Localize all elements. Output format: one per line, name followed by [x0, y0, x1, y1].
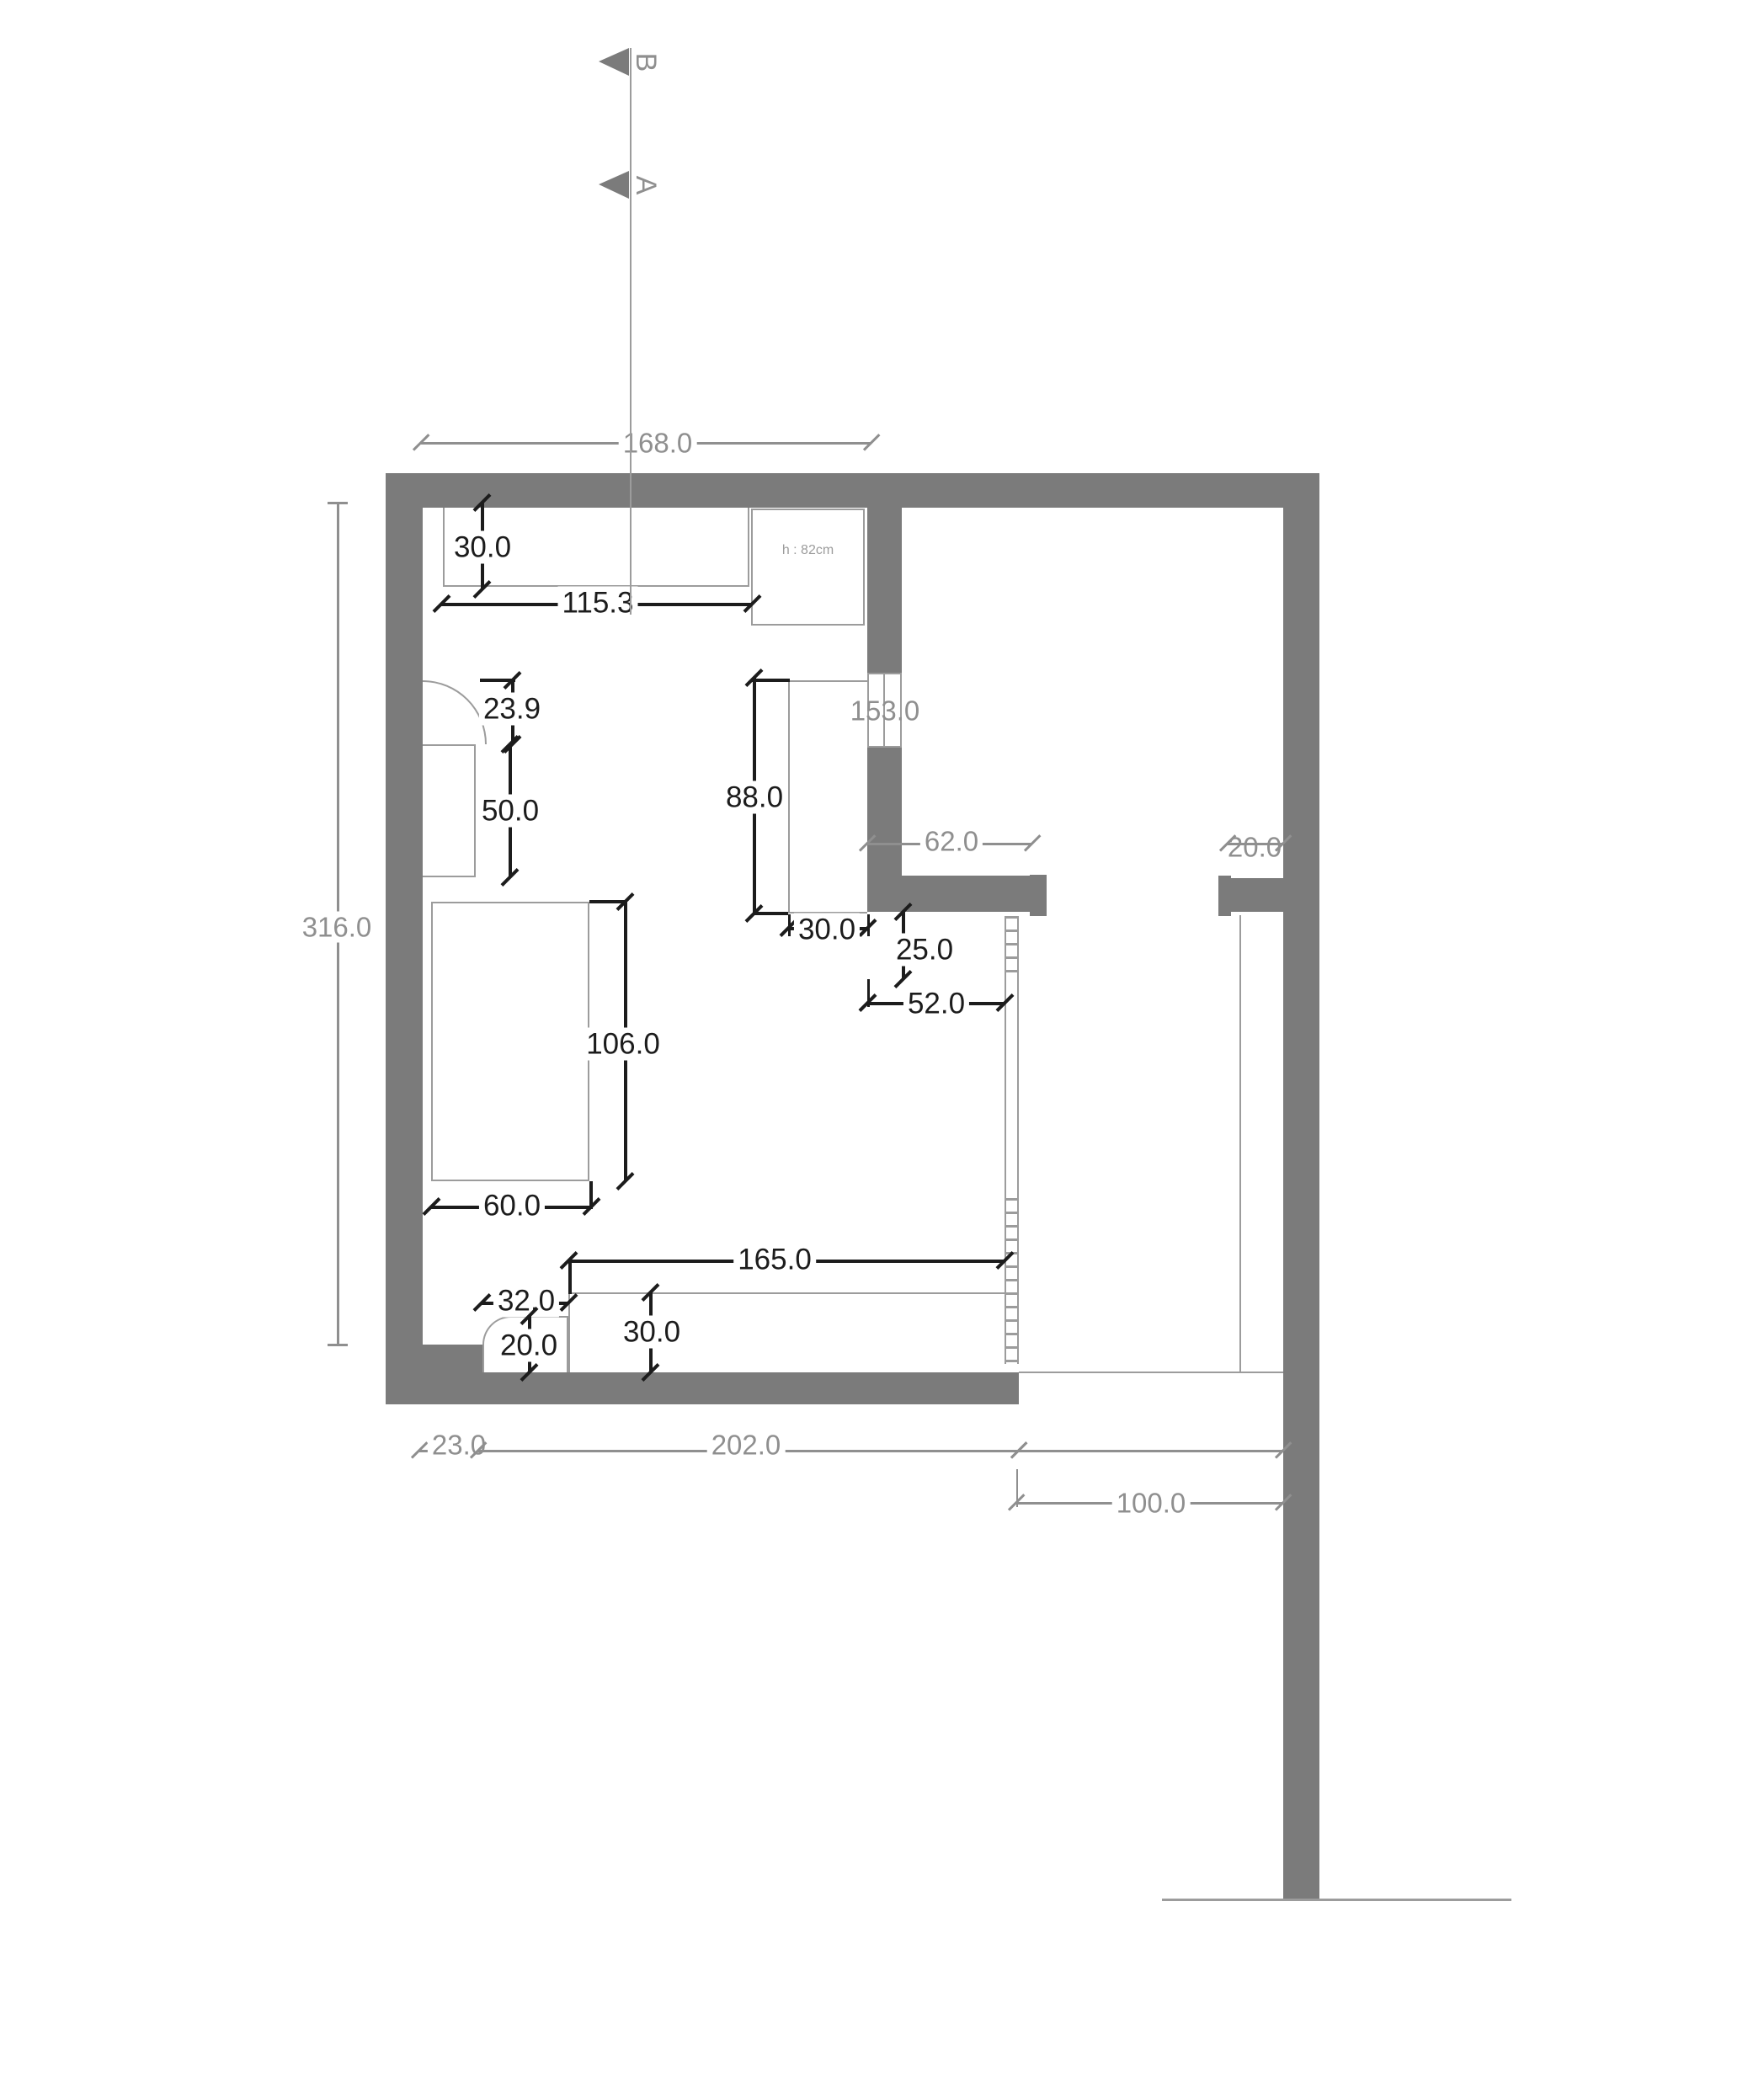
dim-label-pier-width: 20.0	[1223, 832, 1286, 863]
dim-tick-height-left-start	[328, 502, 348, 504]
dim-label-sideboard-length: 88.0	[722, 781, 787, 814]
wall-right	[1283, 473, 1319, 1900]
section-cut-line	[630, 48, 632, 615]
dim-label-recess-width: 52.0	[903, 988, 969, 1020]
line-hook-sideboard-top	[752, 679, 790, 682]
dim-label-cabinet-depth: 20.0	[496, 1329, 562, 1362]
floor-plan-canvas: 168.0316.030.0115.323.950.088.0153.062.0…	[0, 0, 1764, 2088]
line-line-boundary	[1162, 1899, 1511, 1901]
dim-label-wardrobe-length: 50.0	[477, 795, 543, 828]
door-swing-arc	[423, 680, 487, 744]
dim-label-bottom-width: 202.0	[707, 1430, 786, 1461]
furniture-wardrobe	[423, 744, 476, 877]
furniture-cabinet-h82	[751, 509, 865, 626]
dim-label-bed-width: 60.0	[479, 1190, 545, 1222]
furniture-bed	[431, 902, 589, 1181]
wall-bottom	[386, 1372, 1019, 1404]
section-marker-b-icon	[599, 48, 629, 76]
dim-label-counter-depth: 30.0	[450, 531, 515, 564]
dim-label-gap-depth: 25.0	[892, 934, 957, 967]
section-label-b: B	[632, 48, 660, 77]
dim-tick-height-left-end	[328, 1344, 348, 1346]
dim-label-sideboard-depth: 30.0	[794, 913, 860, 946]
dim-label-bench-depth: 30.0	[619, 1316, 685, 1349]
line-hook-bench-length	[568, 1260, 572, 1294]
sliding-door-rail-hatch-0	[1006, 916, 1017, 982]
line-hook-sideboard-bottom	[754, 912, 788, 915]
wall-stub-right	[1231, 878, 1283, 912]
wall-top	[386, 473, 1319, 508]
dim-label-bench-length: 165.0	[733, 1244, 816, 1276]
section-marker-a-icon	[599, 171, 629, 199]
sliding-door-rail-hatch-1	[1006, 1198, 1017, 1363]
dim-label-cabinet-width: 32.0	[493, 1285, 559, 1318]
line-line-right-room-edge	[1239, 915, 1241, 1372]
dim-label-door-leaf: 23.9	[479, 693, 545, 726]
wall-stub-right-cap	[1218, 876, 1231, 916]
counter-height-note: h : 82cm	[751, 543, 865, 558]
wall-left	[386, 473, 423, 1404]
wall-stub-left-cap	[1030, 875, 1047, 916]
dim-label-opening-height: 153.0	[846, 695, 925, 727]
wall-partition-lower	[867, 748, 902, 912]
wall-stub-left	[902, 876, 1030, 912]
dim-label-height-left: 316.0	[298, 912, 376, 943]
dim-line-bottom-chain	[1019, 1450, 1283, 1452]
section-label-a: A	[632, 171, 660, 200]
line-line-bottom-right-edge	[1019, 1372, 1283, 1373]
dim-label-counter-width: 115.3	[558, 587, 638, 620]
dim-label-bed-length: 106.0	[582, 1028, 664, 1061]
dim-label-terrace-width: 100.0	[1112, 1488, 1191, 1519]
dim-label-opening-width: 62.0	[920, 826, 983, 857]
wall-bottom-step	[423, 1345, 482, 1372]
wall-partition-upper	[867, 508, 902, 673]
